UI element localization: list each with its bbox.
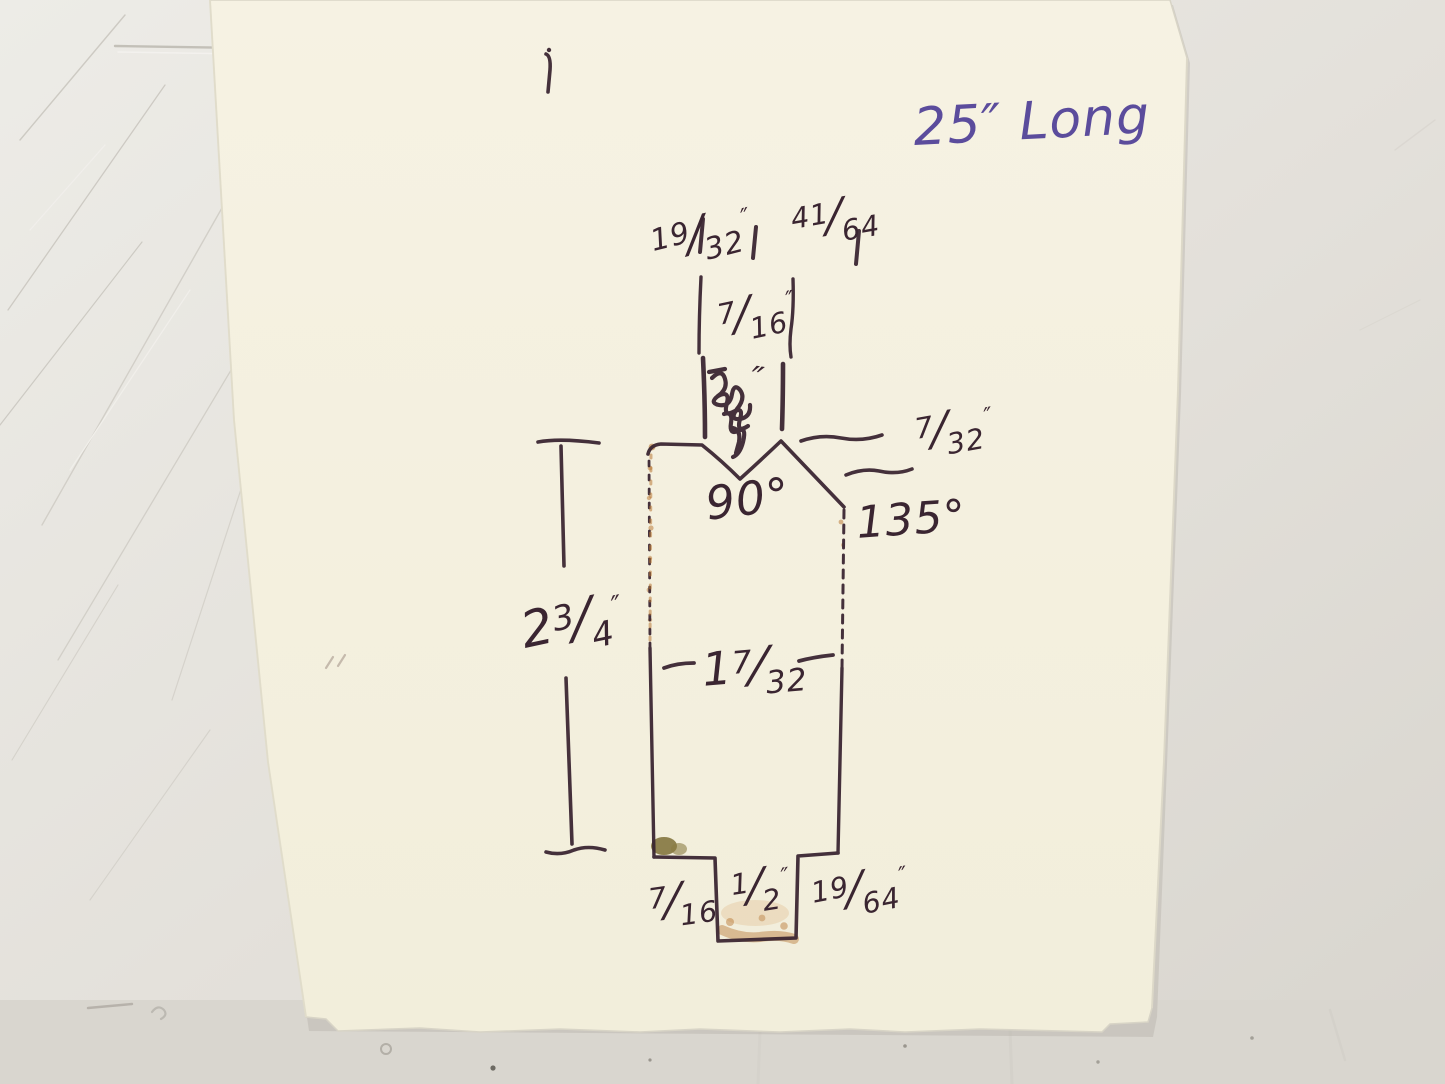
chamfer-angle: 135° [855,494,968,546]
length-note: 25″ Long [912,90,1151,154]
dim-bottom-right-offset-num: 19 [809,872,852,907]
dim-tab-width: 1/2″ [728,859,795,912]
dim-notch-depth-den: 32 [945,424,988,459]
dim-top-width-right-den: 64 [840,211,883,246]
dim-body-width-whole: 1 [700,640,735,696]
v-notch-angle: 90° [703,471,793,527]
dim-body-width: 17/32 [700,637,808,694]
dim-tab-width-den: 2 [760,884,783,915]
sketch-drawing [0,0,1445,1084]
photo-of-sketch: 25″ Long 19/32″ 41/64 7/16″ ″ 7/32″ 90° … [0,0,1445,1084]
dim-bottom-left-offset-den: 16 [678,896,720,930]
dim-tongue-width-den: 16 [747,307,790,343]
dim-bottom-left-offset: 7/16 [646,873,719,926]
dim-bottom-right-offset-den: 64 [860,883,903,918]
dim-body-width-den: 32 [765,665,809,700]
